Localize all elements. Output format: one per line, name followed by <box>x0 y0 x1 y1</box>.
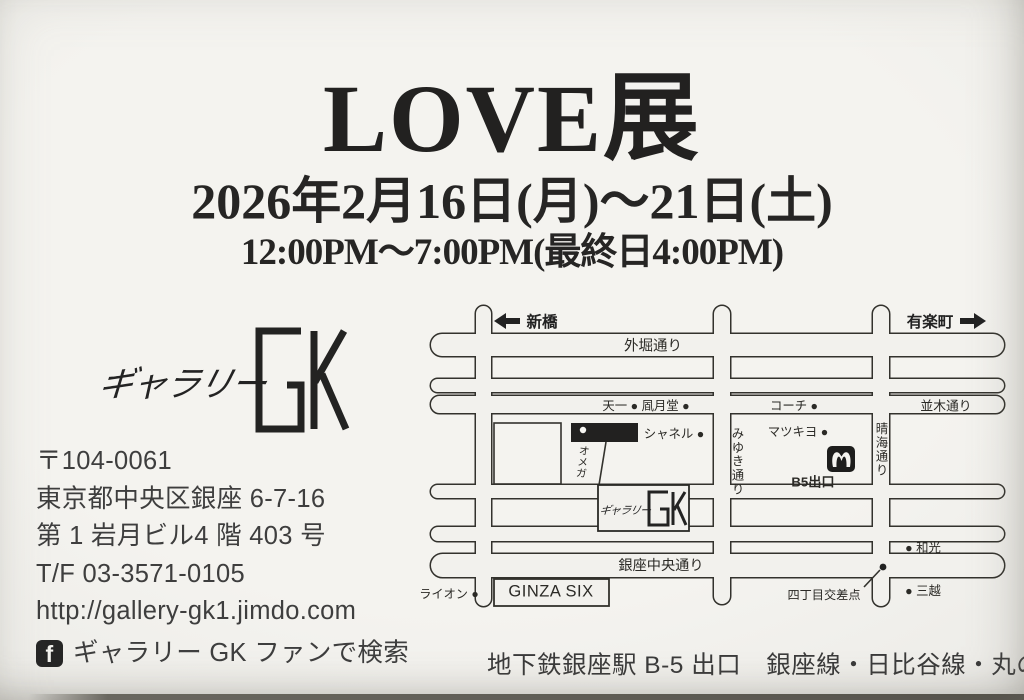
facebook-search-text: ギャラリー GK ファンで検索 <box>73 635 409 673</box>
map-caption: 地下鉄銀座駅 B-5 出口 銀座線・日比谷線・丸の内線 <box>487 646 1024 681</box>
ginza-access-map: 新橋 有楽町 外堀通り 天一 ● 凮月堂 ● コーチ ● 並木通り シャネル ●… <box>416 299 1020 617</box>
arrow-right-icon <box>960 313 986 329</box>
poi-tenichi-fugetsudo: 天一 ● 凮月堂 ● <box>602 396 689 414</box>
street-sotobori-label: 外堀通り <box>624 335 682 356</box>
crossing-dot <box>880 564 887 571</box>
poi-matsukiyo: マツキヨ ● <box>768 422 829 440</box>
page-title: LOVE展 <box>0 40 1024 179</box>
exhibition-hours: 12:00PM〜7:00PM(最終日4:00PM) <box>0 221 1024 275</box>
gallery-callout-line <box>599 442 606 485</box>
gallery-logo-script: ギャラリー <box>94 356 272 407</box>
poi-wako: ● 和光 <box>905 538 941 556</box>
gk-logo-strokes <box>259 331 346 429</box>
poi-ginza-six: GINZA SIX <box>508 583 593 602</box>
city-block <box>494 423 561 484</box>
address-line-2: 第 1 岩月ビル4 階 403 号 <box>36 518 409 556</box>
exit-b5-label: B5出口 <box>791 472 834 491</box>
photo-bottom-edge <box>28 694 1024 700</box>
direction-shimbashi: 新橋 <box>526 310 557 332</box>
poi-mitsukoshi: ● 三越 <box>905 581 941 599</box>
direction-yurakucho: 有楽町 <box>907 310 954 332</box>
address-line-1: 東京都中央区銀座 6-7-16 <box>36 481 409 519</box>
map-roads-fill <box>431 306 1004 606</box>
poi-yonchome-crossing: 四丁目交差点 <box>787 585 860 603</box>
street-miyuki-label: みゆき通り <box>728 427 746 497</box>
street-chuo-label: 銀座中央通り <box>618 555 703 575</box>
omega-building-dot <box>580 427 586 433</box>
street-namiki-label: 並木通り <box>920 396 971 415</box>
map-canvas <box>416 299 1020 617</box>
facebook-icon: f <box>36 640 63 667</box>
facebook-row: f ギャラリー GK ファンで検索 <box>36 635 409 673</box>
exhibition-flyer: LOVE展 2026年2月16日(月)〜21日(土) 12:00PM〜7:00P… <box>0 0 1024 700</box>
poi-lion: ライオン ● <box>419 584 479 602</box>
phone-fax: T/F 03-3571-0105 <box>36 556 409 594</box>
poi-chanel: シャネル ● <box>644 424 705 442</box>
gallery-box-script: ギャラリー <box>598 502 652 518</box>
poi-coach: コーチ ● <box>770 396 818 414</box>
postal-code: 〒104-0061 <box>36 443 409 481</box>
website-url: http://gallery-gk1.jimdo.com <box>36 593 409 631</box>
arrow-left-icon <box>494 313 520 329</box>
street-harumi-label: 晴海通り <box>872 422 890 478</box>
gallery-logo-initials-icon <box>248 326 352 439</box>
gallery-info-block: 〒104-0061 東京都中央区銀座 6-7-16 第 1 岩月ビル4 階 40… <box>36 443 409 673</box>
